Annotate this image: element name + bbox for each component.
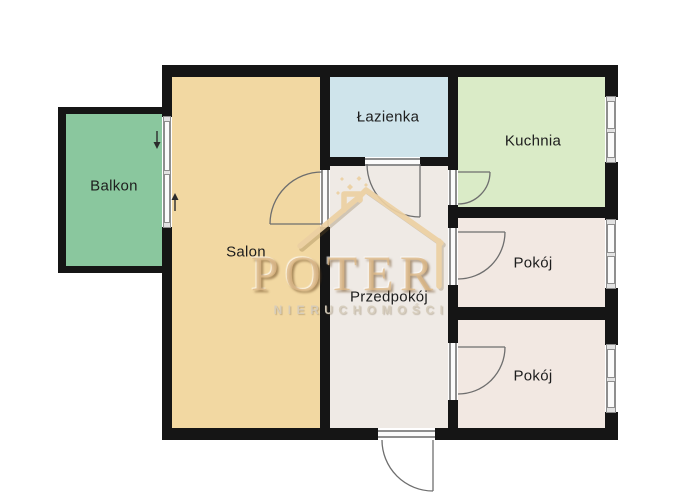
kuchnia-window: [606, 97, 616, 162]
wall-balkon-left: [58, 107, 66, 273]
wall-przedpokoj-right-a: [448, 65, 458, 170]
watermark-brand: POTER: [237, 244, 453, 302]
window-mullion: [606, 128, 616, 133]
window-mullion: [606, 377, 616, 382]
wall-top: [162, 65, 618, 77]
wall-salon-left-upper: [162, 65, 172, 117]
wall-right-1: [605, 65, 618, 97]
pokoj-2-door-frame: [449, 343, 457, 400]
wall-kuchnia-bottom: [448, 207, 618, 218]
wall-salon-przedpokoj-upper: [320, 65, 330, 170]
wall-bottom-left: [162, 428, 378, 440]
window-mullion: [606, 252, 616, 257]
kuchnia-door-frame: [449, 170, 457, 205]
balcony-door-window: [163, 117, 171, 227]
pokoj-1-window: [606, 220, 616, 288]
label-balkon: Balkon: [90, 178, 138, 195]
watermark-subtitle: NIERUCHOMOŚCI: [266, 303, 456, 317]
wall-przedpokoj-right-d: [448, 400, 458, 440]
wall-bottom-right: [435, 428, 618, 440]
wall-balkon-top: [58, 107, 162, 114]
salon-door-frame: [321, 170, 329, 227]
wall-right-4: [605, 412, 618, 440]
wall-lazienka-bottom-right: [420, 157, 458, 166]
floor-plan: Balkon Salon Łazienka Kuchnia Przedpokój…: [0, 0, 683, 500]
window-mullion: [163, 170, 171, 175]
wall-salon-left-lower: [162, 227, 172, 440]
wall-pokoj-divider: [448, 307, 618, 320]
wall-lazienka-bottom-left: [320, 157, 365, 166]
label-kuchnia: Kuchnia: [505, 133, 561, 150]
label-pokoj-1: Pokój: [513, 255, 552, 272]
pokoj-2-window: [606, 345, 616, 412]
label-pokoj-2: Pokój: [513, 368, 552, 385]
entrance-door-frame: [378, 430, 435, 438]
wall-balkon-bottom: [58, 266, 170, 273]
entrance-door-icon: [382, 440, 433, 491]
label-lazienka: Łazienka: [357, 109, 419, 126]
lazienka-door-frame: [365, 158, 420, 166]
